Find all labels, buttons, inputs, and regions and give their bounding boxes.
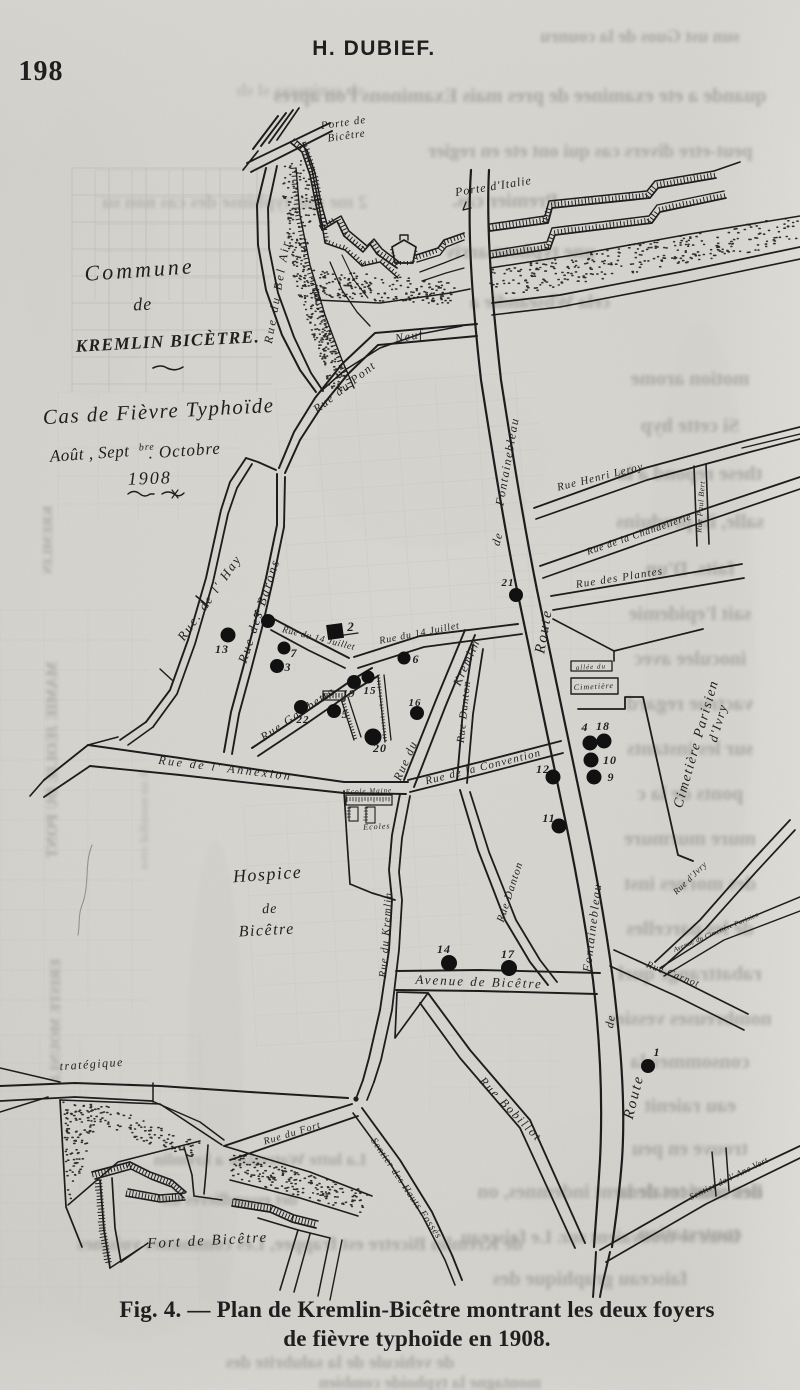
svg-text:eau raienit: eau raienit bbox=[644, 1095, 736, 1117]
svg-text:17: 17 bbox=[501, 947, 515, 961]
svg-text:5: 5 bbox=[342, 707, 349, 721]
svg-text:faisceau graphique des: faisceau graphique des bbox=[493, 1268, 688, 1290]
svg-text:de fièvre typhoïde en 1908.: de fièvre typhoïde en 1908. bbox=[283, 1326, 551, 1351]
svg-text:trouve en peu: trouve en peu bbox=[632, 1138, 748, 1160]
svg-text:Si cette hyp: Si cette hyp bbox=[641, 415, 740, 437]
svg-text:Bicêtre: Bicêtre bbox=[238, 921, 295, 941]
svg-text:9: 9 bbox=[608, 770, 615, 784]
svg-text:de Kremlin Bicetre est frappee: de Kremlin Bicetre est frappee, Les comm… bbox=[77, 1234, 523, 1255]
svg-text:14: 14 bbox=[437, 942, 451, 956]
svg-text:19: 19 bbox=[343, 688, 356, 700]
svg-text:7: 7 bbox=[291, 646, 298, 660]
svg-text:11: 11 bbox=[542, 811, 555, 825]
svg-text:22: 22 bbox=[296, 714, 310, 726]
svg-text:nombreuses vessies: nombreuses vessies bbox=[608, 1008, 772, 1030]
svg-text:15: 15 bbox=[364, 685, 377, 697]
svg-text:1: 1 bbox=[654, 1045, 661, 1059]
svg-text:peut-etre divers cas qui ont e: peut-etre divers cas qui ont ete en regi… bbox=[427, 141, 752, 162]
svg-text:16: 16 bbox=[409, 697, 422, 709]
svg-text:KREMLIN: KREMLIN bbox=[41, 506, 56, 574]
svg-text:21: 21 bbox=[501, 577, 515, 589]
svg-text:8: 8 bbox=[254, 606, 261, 620]
svg-text:de vehicule de la salubrite: de vehicule de la salubrite des bbox=[226, 1352, 455, 1372]
svg-text:motion arome: motion arome bbox=[630, 368, 749, 390]
svg-text:de: de bbox=[602, 1014, 618, 1030]
svg-text:sb ssnimexs sl sb: sb ssnimexs sl sb bbox=[236, 80, 364, 100]
svg-text:13: 13 bbox=[215, 642, 229, 656]
svg-text:2: 2 bbox=[346, 619, 355, 634]
svg-text:Ecoles: Ecoles bbox=[362, 821, 391, 831]
svg-text:198: 198 bbox=[19, 56, 64, 87]
svg-text:20: 20 bbox=[372, 741, 387, 755]
svg-text:18: 18 bbox=[596, 719, 610, 733]
svg-text:de: de bbox=[262, 902, 278, 918]
svg-text:12: 12 bbox=[536, 762, 550, 776]
svg-text:6: 6 bbox=[413, 652, 420, 666]
svg-text:1908: 1908 bbox=[127, 467, 172, 489]
svg-text:Fig. 4. — Plan de Kremlin-Bicê: Fig. 4. — Plan de Kremlin-Bicêtre montra… bbox=[119, 1297, 714, 1322]
svg-text:montagne la typhoide combie: montagne la typhoide combien bbox=[318, 1373, 541, 1390]
svg-text:inoculee avec: inoculee avec bbox=[634, 648, 747, 670]
svg-text:sun ust Guos de la counru: sun ust Guos de la counru bbox=[540, 26, 740, 46]
svg-text:4: 4 bbox=[581, 720, 589, 734]
svg-text:mure murmure: mure murmure bbox=[624, 828, 756, 850]
svg-text:3: 3 bbox=[284, 660, 292, 674]
svg-text:de: de bbox=[133, 294, 153, 315]
svg-text:H. DUBIEF.: H. DUBIEF. bbox=[312, 37, 436, 60]
svg-text:10: 10 bbox=[603, 753, 617, 767]
svg-text:allée du: allée du bbox=[576, 662, 607, 672]
svg-text:Ecole Maine: Ecole Maine bbox=[345, 786, 393, 796]
